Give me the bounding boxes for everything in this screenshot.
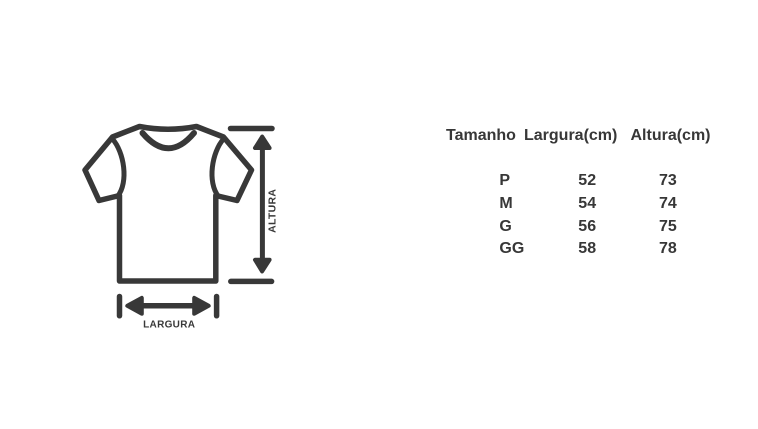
svg-text:ALTURA: ALTURA — [267, 189, 279, 233]
svg-text:LARGURA: LARGURA — [143, 320, 195, 331]
